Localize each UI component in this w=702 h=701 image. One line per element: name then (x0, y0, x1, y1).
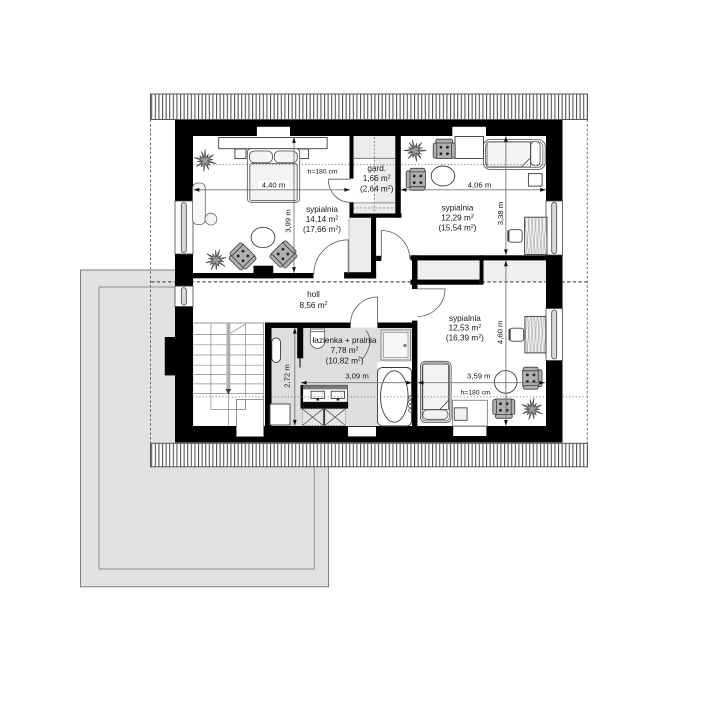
svg-text:12,53 m2: 12,53 m2 (449, 324, 482, 333)
svg-text:sypialnia: sypialnia (306, 205, 338, 214)
svg-text:3,59 m: 3,59 m (467, 371, 491, 380)
svg-text:1,66 m2: 1,66 m2 (363, 174, 391, 183)
svg-text:sypialnia: sypialnia (449, 314, 481, 323)
svg-text:4,06 m: 4,06 m (468, 180, 492, 189)
svg-text:sypialnia: sypialnia (442, 204, 474, 213)
svg-text:h=180 cm: h=180 cm (307, 169, 337, 176)
svg-text:3,38 m: 3,38 m (496, 202, 505, 226)
svg-text:4,60 m: 4,60 m (496, 321, 505, 345)
svg-text:holl: holl (307, 290, 320, 299)
svg-text:3,99 m: 3,99 m (283, 209, 292, 233)
svg-text:4,40 m: 4,40 m (262, 180, 286, 189)
svg-text:łazienka + pralnia: łazienka + pralnia (313, 336, 377, 345)
svg-text:12,29 m2: 12,29 m2 (441, 214, 474, 223)
svg-text:gard.: gard. (367, 164, 386, 173)
svg-text:14,14 m2: 14,14 m2 (306, 215, 339, 224)
svg-text:8,56 m2: 8,56 m2 (300, 301, 328, 310)
svg-text:3,09 m: 3,09 m (345, 371, 369, 380)
svg-text:7,78 m2: 7,78 m2 (331, 346, 359, 355)
svg-text:h=180 cm: h=180 cm (460, 390, 490, 397)
svg-text:2,72 m: 2,72 m (282, 364, 291, 388)
